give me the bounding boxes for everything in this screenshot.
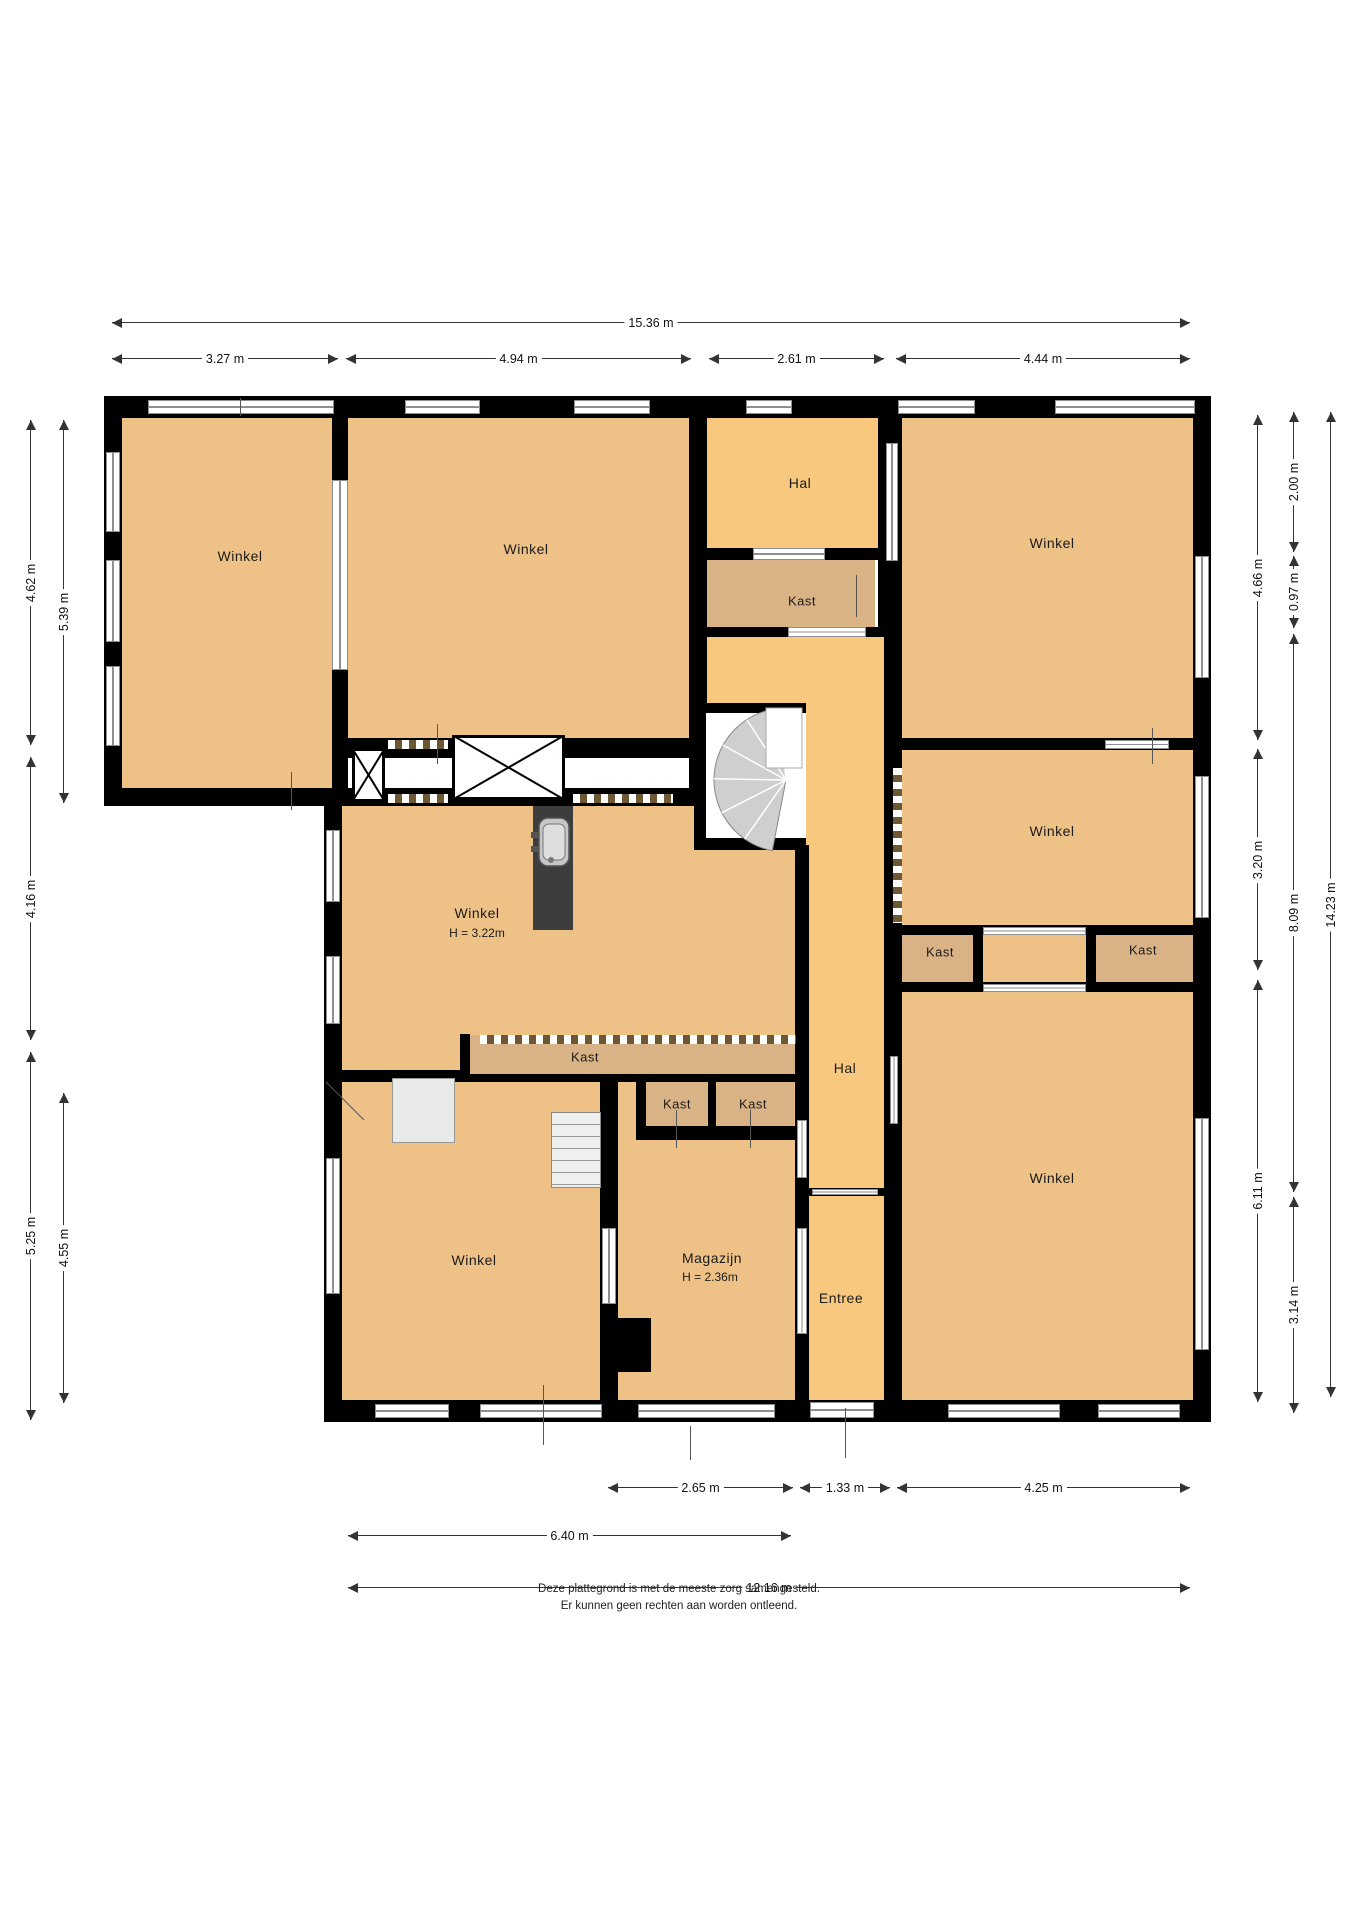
- wall: [884, 1188, 902, 1402]
- door-tick: [291, 772, 292, 810]
- room-label-winkel-mid: Winkel: [454, 905, 499, 921]
- dim-arrowhead: [681, 354, 691, 364]
- dim-label: 4.55 m: [57, 1225, 71, 1271]
- door-tick: [845, 1408, 846, 1458]
- room-label-winkel-mid-height: H = 3.22m: [449, 926, 505, 940]
- shaft-box: [452, 735, 565, 800]
- straight-stairs: [551, 1112, 601, 1188]
- room-label-winkel-right: Winkel: [1029, 823, 1074, 839]
- window: [326, 830, 340, 902]
- dim-arrowhead: [800, 1483, 810, 1493]
- dim-arrowhead: [112, 354, 122, 364]
- window: [148, 400, 334, 414]
- window: [898, 400, 975, 414]
- dim-arrowhead: [1289, 1197, 1299, 1207]
- wall: [973, 925, 983, 992]
- window: [638, 1404, 775, 1418]
- door-tick: [690, 1426, 691, 1460]
- dim-label: 2.65 m: [677, 1481, 723, 1495]
- dim-label: 0.97 m: [1287, 569, 1301, 615]
- dim-arrowhead: [1180, 354, 1190, 364]
- shaft-x-icon: [352, 748, 385, 802]
- dim-arrowhead: [26, 1410, 36, 1420]
- dim-label: 8.09 m: [1287, 890, 1301, 936]
- room-label-winkel-topleft: Winkel: [217, 548, 262, 564]
- dim-arrowhead: [1253, 415, 1263, 425]
- dim-label: 4.66 m: [1251, 554, 1265, 600]
- dim-label: 3.14 m: [1287, 1282, 1301, 1328]
- dashed-opening: [388, 740, 448, 749]
- dim-arrowhead: [346, 354, 356, 364]
- window: [405, 400, 480, 414]
- dim-arrowhead: [1253, 749, 1263, 759]
- window: [1105, 740, 1169, 749]
- room-fill-kast: [700, 550, 875, 635]
- dim-arrowhead: [709, 354, 719, 364]
- window: [1055, 400, 1195, 414]
- window: [106, 666, 120, 746]
- window: [753, 548, 825, 560]
- dim-arrowhead: [26, 1030, 36, 1040]
- dashed-opening: [573, 794, 673, 803]
- dim-arrowhead: [26, 735, 36, 745]
- dim-arrowhead: [1180, 1483, 1190, 1493]
- dim-arrowhead: [112, 318, 122, 328]
- wall: [1086, 925, 1096, 992]
- dim-arrowhead: [608, 1483, 618, 1493]
- dim-arrowhead: [1326, 412, 1336, 422]
- dim-arrowhead: [1253, 980, 1263, 990]
- dim-arrowhead: [1289, 634, 1299, 644]
- dashed-opening: [388, 794, 448, 803]
- dim-arrowhead: [1289, 542, 1299, 552]
- wall: [636, 1082, 646, 1130]
- room-label-kast-strip: Kast: [571, 1050, 599, 1065]
- wall: [460, 1074, 798, 1082]
- window: [326, 1158, 340, 1294]
- window: [1195, 776, 1209, 918]
- dim-arrowhead: [1289, 556, 1299, 566]
- dim-arrowhead: [1289, 412, 1299, 422]
- room-label-winkel-bottomright: Winkel: [1029, 1170, 1074, 1186]
- dim-arrowhead: [1326, 1387, 1336, 1397]
- dim-label: 14.23 m: [1324, 878, 1338, 931]
- room-fill-winkel: [340, 410, 700, 750]
- dim-arrowhead: [783, 1483, 793, 1493]
- dim-arrowhead: [880, 1483, 890, 1493]
- dim-label: 2.00 m: [1287, 459, 1301, 505]
- dim-arrowhead: [59, 1093, 69, 1103]
- window: [797, 1120, 807, 1178]
- room-label-kast-a: Kast: [663, 1097, 691, 1112]
- dim-arrowhead: [1253, 730, 1263, 740]
- dashed-opening: [893, 768, 902, 923]
- room-label-kast-right-b: Kast: [1129, 943, 1157, 958]
- wall: [614, 1318, 651, 1372]
- window: [1195, 1118, 1209, 1350]
- wall: [694, 703, 806, 713]
- wall: [104, 788, 354, 806]
- room-fill-winkel: [980, 928, 1090, 985]
- window: [326, 956, 340, 1024]
- dim-arrowhead: [348, 1531, 358, 1541]
- wall: [636, 1126, 798, 1140]
- window: [890, 1056, 898, 1124]
- window: [810, 1402, 874, 1418]
- window: [106, 560, 120, 642]
- dim-arrowhead: [781, 1531, 791, 1541]
- footer-line1: Deze plattegrond is met de meeste zorg s…: [0, 1581, 1358, 1598]
- room-label-winkel-bottomleft: Winkel: [451, 1252, 496, 1268]
- dim-arrowhead: [897, 1483, 907, 1493]
- door-tick: [750, 1110, 751, 1148]
- room-label-hal-corridor: Hal: [834, 1060, 857, 1076]
- room-label-hal-top: Hal: [789, 475, 812, 491]
- door-tick: [543, 1385, 544, 1445]
- window: [746, 400, 792, 414]
- dim-label: 1.33 m: [822, 1481, 868, 1495]
- dim-label: 5.39 m: [57, 588, 71, 634]
- door-tick: [437, 724, 438, 764]
- room-fill-kast: [1090, 928, 1198, 988]
- shaft-box: [352, 748, 385, 802]
- dim-arrowhead: [328, 354, 338, 364]
- dim-arrowhead: [59, 793, 69, 803]
- dim-arrowhead: [1289, 618, 1299, 628]
- dim-arrowhead: [896, 354, 906, 364]
- dim-arrowhead: [26, 757, 36, 767]
- window: [375, 1404, 449, 1418]
- room-fill-winkel: [895, 985, 1198, 1405]
- dim-arrowhead: [59, 1393, 69, 1403]
- room-label-kast-right-a: Kast: [926, 945, 954, 960]
- room-label-winkel-topright: Winkel: [1029, 535, 1074, 551]
- room-fill-winkel: [890, 410, 1200, 745]
- window: [983, 984, 1086, 992]
- dim-label: 4.44 m: [1020, 352, 1066, 366]
- dim-arrowhead: [26, 420, 36, 430]
- room-label-winkel-topmid: Winkel: [503, 541, 548, 557]
- wall: [700, 838, 806, 850]
- dim-label: 15.36 m: [624, 316, 677, 330]
- dim-arrowhead: [1180, 318, 1190, 328]
- room-fill-winkel: [110, 410, 340, 795]
- window: [983, 927, 1086, 935]
- room-label-entree: Entree: [819, 1290, 863, 1306]
- window: [948, 1404, 1060, 1418]
- dashed-opening: [480, 1035, 796, 1044]
- room-label-kast-top: Kast: [788, 594, 816, 609]
- wall: [708, 1082, 716, 1130]
- platform: [392, 1078, 455, 1143]
- dim-label: 5.25 m: [24, 1213, 38, 1259]
- window: [797, 1228, 807, 1334]
- window: [602, 1228, 616, 1304]
- window: [106, 452, 120, 532]
- door-tick: [1152, 728, 1153, 764]
- room-label-kast-b: Kast: [739, 1097, 767, 1112]
- footer-disclaimer: Deze plattegrond is met de meeste zorg s…: [0, 1581, 1358, 1615]
- door-tick: [240, 398, 241, 416]
- dim-arrowhead: [1253, 1392, 1263, 1402]
- dim-label: 3.27 m: [202, 352, 248, 366]
- kitchen-counter: [533, 806, 573, 930]
- window: [886, 443, 898, 561]
- window: [574, 400, 650, 414]
- dim-label: 4.16 m: [24, 875, 38, 921]
- floorplan-canvas: WinkelWinkelHalKastWinkelWinkelWinkelH =…: [0, 0, 1358, 1920]
- dim-arrowhead: [1253, 960, 1263, 970]
- window: [480, 1404, 602, 1418]
- wall: [694, 703, 706, 850]
- dim-label: 4.62 m: [24, 559, 38, 605]
- footer-line2: Er kunnen geen rechten aan worden ontlee…: [0, 1598, 1358, 1615]
- window: [812, 1189, 878, 1195]
- window: [332, 480, 348, 670]
- dim-arrowhead: [1289, 1182, 1299, 1192]
- room-fill-winkel: [335, 1035, 465, 1075]
- window: [1098, 1404, 1180, 1418]
- room-label-magazijn-height: H = 2.36m: [682, 1270, 738, 1284]
- room-label-magazijn: Magazijn: [682, 1250, 742, 1266]
- window: [788, 627, 866, 637]
- dim-label: 6.40 m: [546, 1529, 592, 1543]
- door-tick: [676, 1110, 677, 1148]
- dim-arrowhead: [59, 420, 69, 430]
- dim-arrowhead: [874, 354, 884, 364]
- door-tick: [856, 575, 857, 617]
- dim-label: 4.94 m: [495, 352, 541, 366]
- dim-arrowhead: [26, 1052, 36, 1062]
- window: [1195, 556, 1209, 678]
- dim-label: 4.25 m: [1020, 1481, 1066, 1495]
- shaft-x-icon: [452, 735, 565, 800]
- dim-label: 3.20 m: [1251, 836, 1265, 882]
- dim-arrowhead: [1289, 1403, 1299, 1413]
- dim-label: 6.11 m: [1251, 1168, 1265, 1213]
- dim-label: 2.61 m: [773, 352, 819, 366]
